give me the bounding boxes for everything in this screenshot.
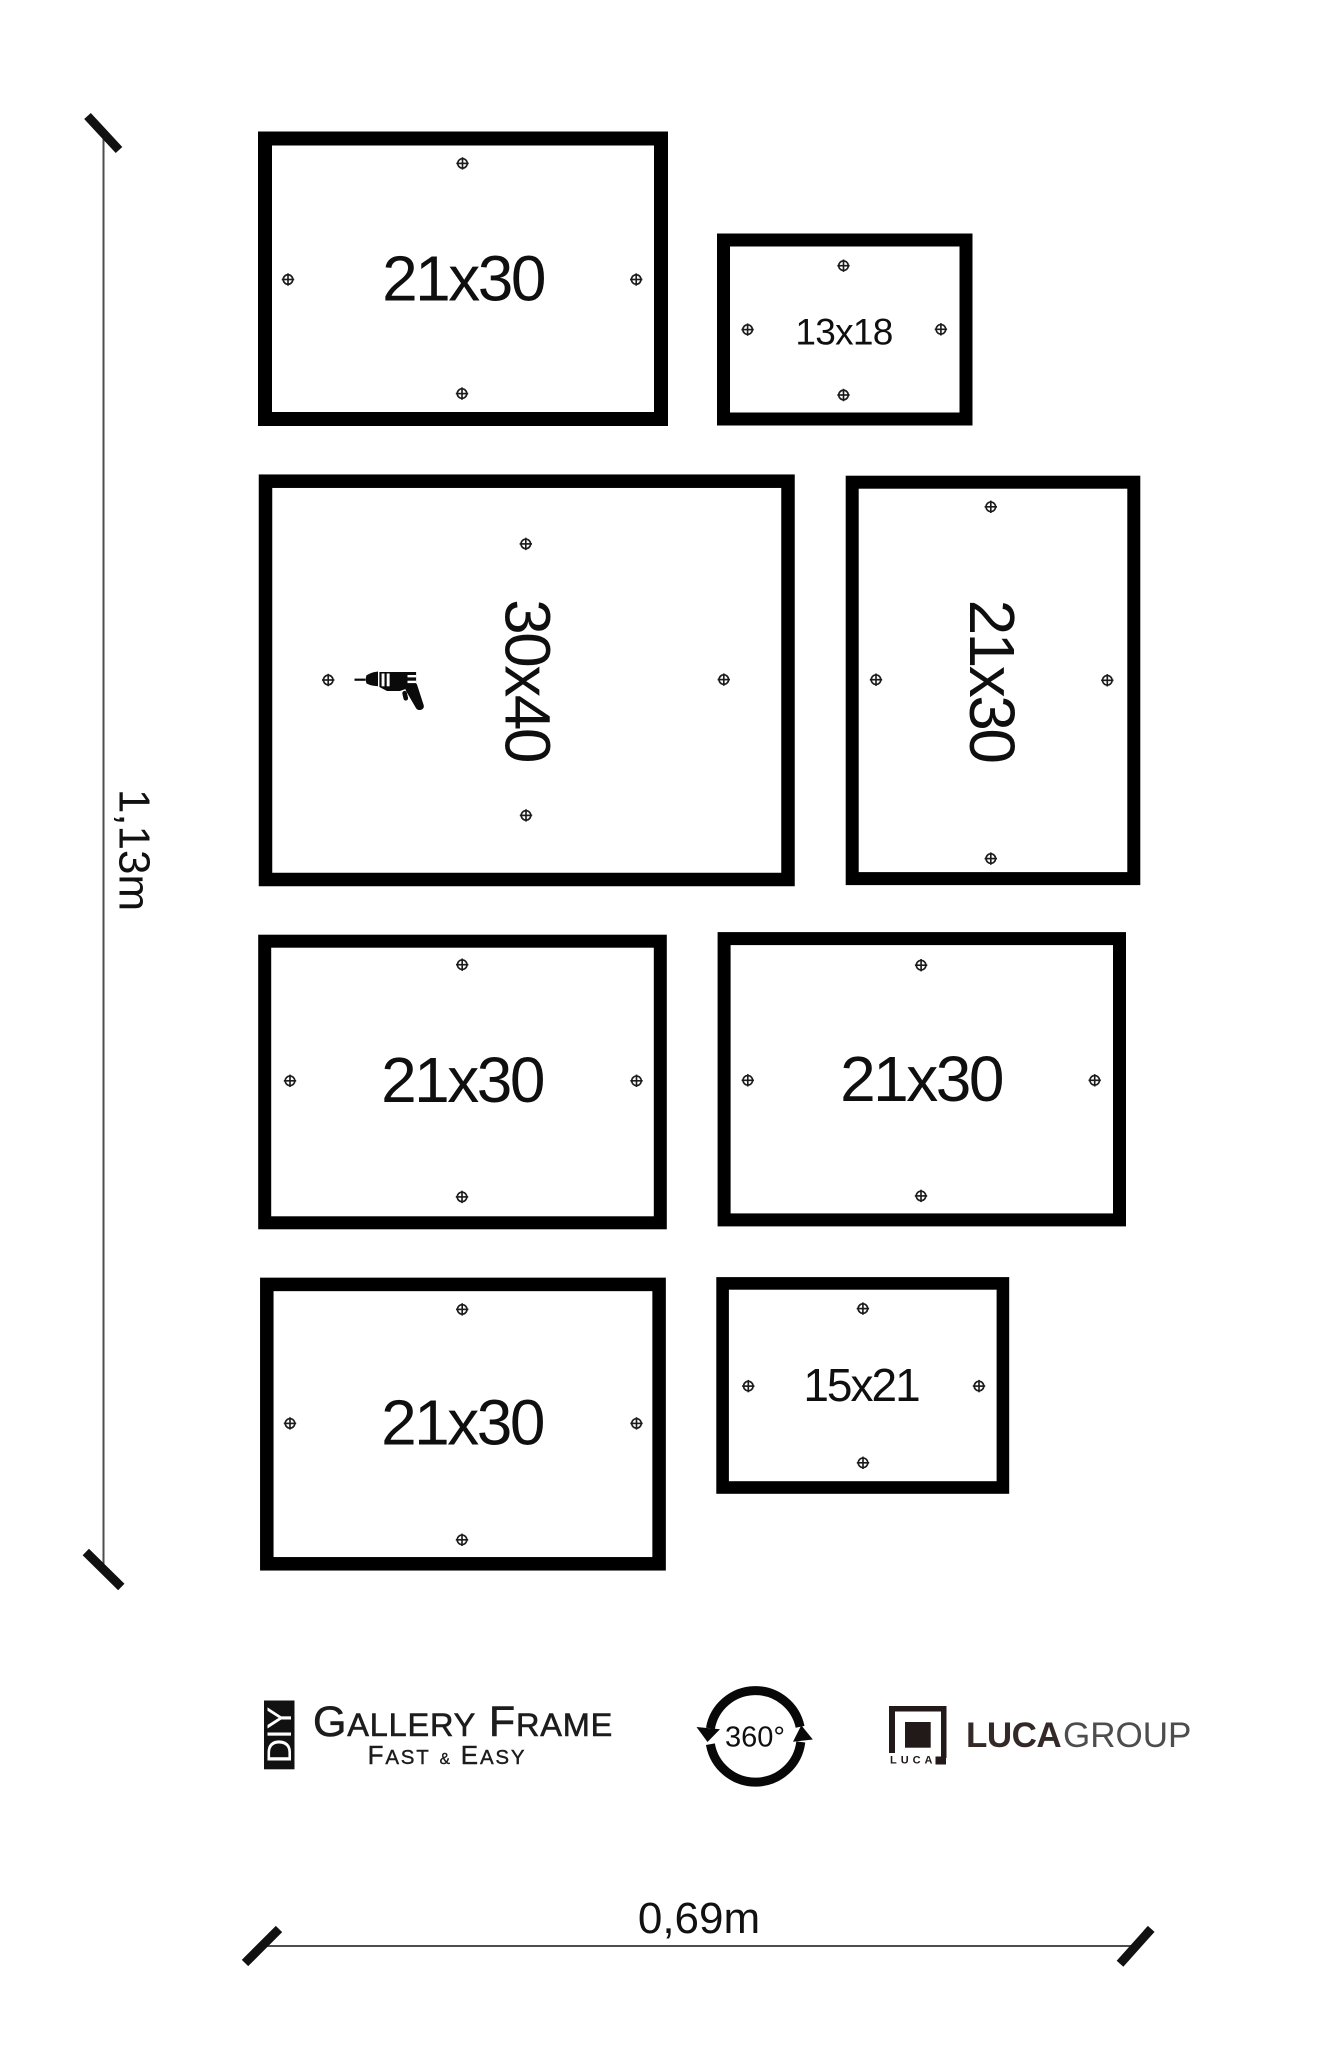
svg-text:30x40: 30x40 bbox=[492, 599, 564, 762]
svg-text:21x30: 21x30 bbox=[382, 243, 545, 315]
svg-text:DIY: DIY bbox=[261, 1707, 299, 1764]
svg-text:21x30: 21x30 bbox=[381, 1044, 544, 1116]
svg-text:LUCA: LUCA bbox=[966, 1716, 1061, 1755]
svg-text:360°: 360° bbox=[725, 1722, 785, 1754]
svg-text:15x21: 15x21 bbox=[803, 1359, 919, 1411]
svg-text:21x30: 21x30 bbox=[381, 1387, 544, 1459]
svg-text:0,69m: 0,69m bbox=[638, 1894, 760, 1943]
svg-text:1,13m: 1,13m bbox=[110, 789, 159, 911]
svg-text:21x30: 21x30 bbox=[956, 600, 1028, 763]
svg-text:21x30: 21x30 bbox=[840, 1043, 1003, 1115]
svg-text:13x18: 13x18 bbox=[795, 312, 892, 353]
svg-text:GROUP: GROUP bbox=[1063, 1716, 1191, 1755]
